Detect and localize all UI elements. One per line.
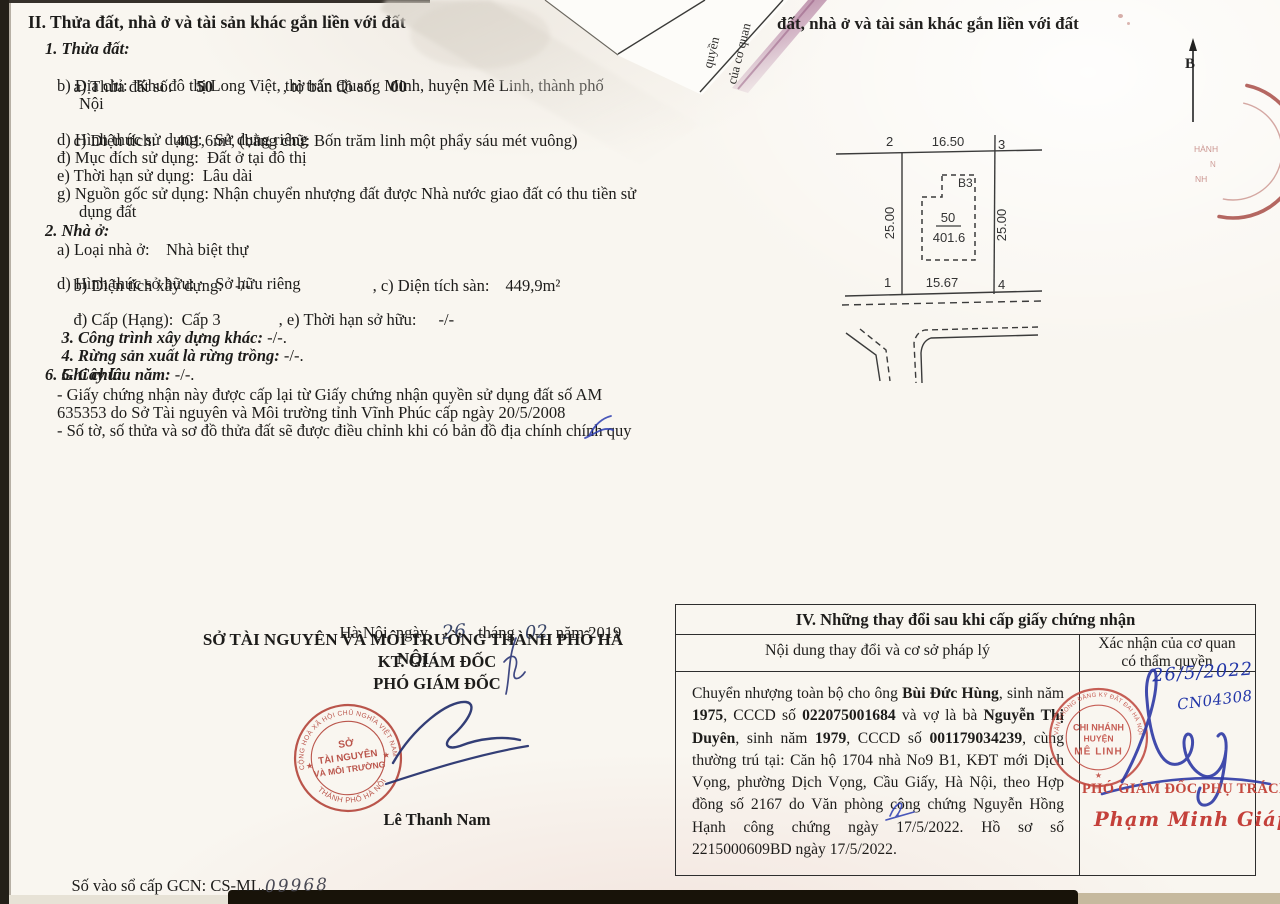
sketch-road-centerline (842, 301, 1041, 305)
sketch-corner-2: 2 (886, 134, 893, 149)
scanned-certificate-page: II. Thửa đất, nhà ở và tài sản khác gắn … (0, 0, 1280, 904)
origin-line2: dụng đất (79, 202, 136, 221)
north-arrow-head (1189, 38, 1197, 51)
house-title: 2. Nhà ở: (45, 221, 109, 240)
seg5: , CCCD số (723, 707, 802, 724)
changes-table-col1-header-cell: Nội dung thay đổi và cơ sở pháp lý (676, 634, 1079, 672)
fold-smudge (410, 1, 550, 69)
approver-title: PHÓ GIÁM ĐỐC PHỤ TRÁCH (1082, 781, 1280, 798)
use-term-line: e) Thời hạn sử dụng: Lâu dài (57, 166, 253, 185)
sketch-parcel-area: 401.6 (933, 230, 966, 245)
sketch-bottom-boundary (845, 291, 1042, 296)
seg1: Chuyển nhượng toàn bộ cho ông (692, 685, 902, 702)
buyer-name: Bùi Đức Hùng (902, 685, 999, 702)
parcel-title: 1. Thửa đất: (45, 39, 130, 58)
seg11: , CCCD số (846, 730, 929, 747)
folded-corner-edge-left (545, 0, 618, 55)
seg13: , cùng thường trú tại: Căn hộ 1704 nhà N… (692, 730, 1064, 858)
seg9: , sinh năm (735, 730, 815, 747)
corner-stamp-outer-ring (1219, 85, 1280, 230)
branch-stamp-center1: CHI NHÁNH (1073, 722, 1124, 732)
changes-table: IV. Những thay đổi sau khi cấp giấy chứn… (675, 604, 1256, 876)
red-speck-2 (1127, 22, 1130, 25)
sketch-road-left-solid (846, 333, 880, 381)
sketch-top-boundary (836, 150, 1042, 154)
own-term-value: -/- (439, 310, 455, 329)
sketch-dim-bottom: 15.67 (926, 275, 959, 290)
note1-line2: 635353 do Sở Tài nguyên và Môi trường tỉ… (57, 403, 565, 422)
sketch-dim-top: 16.50 (932, 134, 965, 149)
folded-corner-text-line1: của cơ quan (724, 21, 755, 85)
transfer-record-text: Chuyển nhượng toàn bộ cho ông Bùi Đức Hù… (692, 683, 1064, 861)
changes-table-col1-header: Nội dung thay đổi và cơ sở pháp lý (676, 642, 1079, 660)
scan-edge-left-inner (9, 0, 11, 904)
use-purpose-line: đ) Mục đích sử dụng: Đất ở tại đô thị (57, 148, 307, 167)
branch-stamp-center3: MÊ LINH (1074, 745, 1123, 758)
cadastral-sketch: 2 3 1 4 16.50 15.67 25.00 25.00 B3 50 40… (828, 115, 1068, 415)
department-stamp: CỘNG HOÀ XÃ HỘI CHỦ NGHĨA VIỆT NAM THÀNH… (285, 695, 411, 821)
north-label: B (1185, 56, 1195, 72)
seg7: và vợ là bà (896, 707, 984, 724)
sketch-corner-3: 3 (998, 137, 1005, 152)
department-stamp-star-left: ★ (305, 761, 313, 771)
notes-title: 6. Ghi chú: (45, 365, 122, 384)
corner-stamp-frag2: N (1210, 160, 1216, 169)
registry-line: Số vào sổ cấp GCN: CS-ML.09968 (55, 857, 329, 904)
scan-edge-bottom-right (1078, 893, 1280, 904)
approver-name: Phạm Minh Giáp (1094, 808, 1280, 831)
corner-stamp-partial: HÀNH N NH (1168, 72, 1280, 237)
wife-id-number: 001179034239 (929, 730, 1022, 747)
corner-stamp-frag3: NH (1195, 174, 1207, 184)
branch-stamp-center2: HUYỆN (1083, 733, 1113, 744)
registry-label: Số vào sổ cấp GCN: CS-ML. (72, 876, 265, 895)
sketch-dim-right: 25.00 (994, 209, 1009, 242)
origin-line1: g) Nguồn gốc sử dụng: Nhận chuyển nhượng… (57, 184, 636, 203)
red-speck-1 (1118, 14, 1123, 18)
address-line1: b) Địa chỉ: Khu đô thị Long Việt, thị tr… (57, 76, 604, 95)
scan-edge-top (9, 0, 430, 3)
floor-area-value: 449,9m² (505, 276, 560, 295)
address-line2: Nội (79, 94, 104, 113)
section5-value: -/-. (171, 365, 195, 384)
signer-name: Lê Thanh Nam (357, 810, 517, 829)
scan-edge-left (0, 0, 9, 904)
department-stamp-center1: SỞ (337, 736, 354, 751)
branch-office-stamp: VĂN PHÒNG ĐĂNG KÝ ĐẤT ĐAI HÀ NỘI CHI NHÁ… (1046, 685, 1151, 790)
sketch-block-label: B3 (958, 176, 973, 190)
department-stamp-ring-bottom-text: THÀNH PHỐ HÀ NỘI (315, 776, 390, 810)
sketch-dim-left: 25.00 (882, 207, 897, 240)
branch-stamp-star: ★ (1095, 771, 1102, 780)
wife-birth-year: 1979 (815, 730, 846, 747)
registry-number-handwritten: 09968 (265, 876, 330, 897)
sketch-corner-4: 4 (998, 277, 1005, 292)
on-behalf-title: KT. GIÁM ĐỐC (337, 652, 537, 671)
corner-stamp-frag1: HÀNH (1194, 144, 1218, 154)
underlying-page-header: đất, nhà ở và tài sản khác gắn liền với … (777, 14, 1079, 33)
col2-header-line1: Xác nhận của cơ quan (1079, 635, 1255, 653)
corner-stamp-inner-ring (1223, 103, 1280, 209)
use-form-line: d) Hình thức sử dụng: Sử dụng riêng (57, 130, 308, 149)
buyer-id-number: 022075001684 (802, 707, 896, 724)
note1-line1: - Giấy chứng nhận này được cấp lại từ Gi… (57, 385, 602, 404)
deputy-director-title: PHÓ GIÁM ĐỐC (337, 674, 537, 693)
section2-heading: II. Thửa đất, nhà ở và tài sản khác gắn … (28, 13, 406, 32)
scan-edge-bottom-dark (228, 890, 1078, 904)
folded-corner-edge-inner (618, 0, 705, 54)
sketch-corner-1: 1 (884, 275, 891, 290)
changes-table-title: IV. Những thay đổi sau khi cấp giấy chứn… (676, 605, 1255, 635)
folded-corner-text-line2: quyền (700, 35, 723, 70)
sketch-road-right-solid (921, 335, 1038, 383)
section4-value: -/-. (280, 346, 304, 365)
buyer-birth-year: 1975 (692, 707, 723, 724)
svg-text:THÀNH PHỐ HÀ NỘI: THÀNH PHỐ HÀ NỘI (315, 776, 390, 810)
note2-line: - Số tờ, số thửa và sơ đồ thửa đất sẽ đư… (57, 421, 632, 440)
department-stamp-star-right: ★ (382, 750, 390, 760)
sketch-parcel-number: 50 (941, 210, 955, 225)
